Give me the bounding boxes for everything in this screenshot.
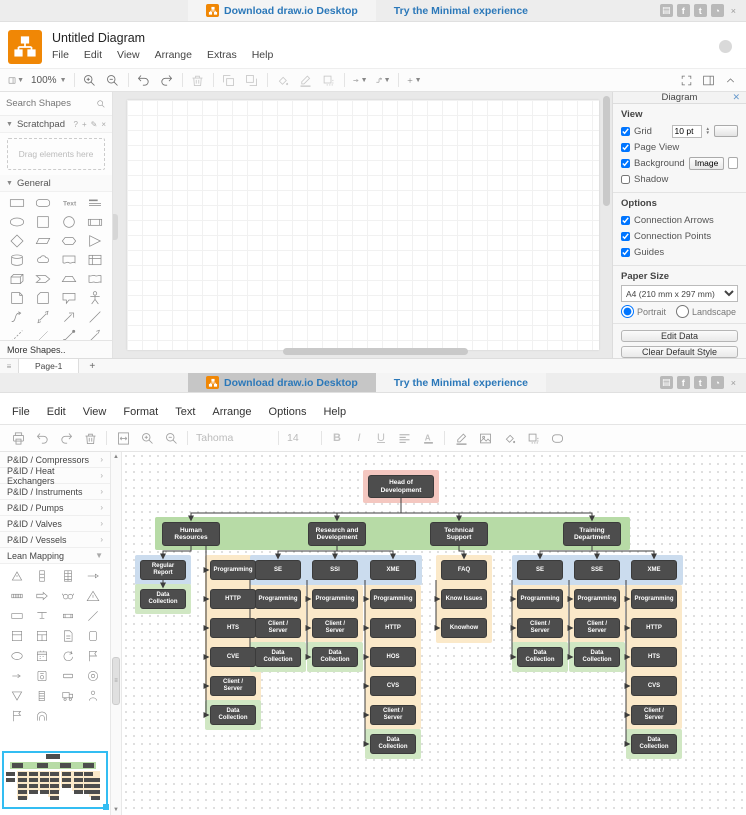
app1-toolbar: ▼100%▼▼▼▼ [0, 68, 746, 92]
lean-shape-flag-note-icon[interactable] [81, 647, 107, 664]
shape-dashed-line-icon[interactable] [4, 327, 30, 340]
insert-button[interactable]: ▼ [406, 72, 422, 88]
social-links: ▤ f t ◔ × [660, 4, 736, 17]
minimal-experience-label: Try the Minimal experience [394, 377, 528, 389]
scroll-up-icon[interactable]: ▲ [111, 454, 121, 460]
outline-thumbnail [4, 753, 104, 807]
shape-callout-icon[interactable] [56, 289, 82, 307]
shape-cylinder-icon[interactable] [4, 251, 30, 269]
more-shapes-button[interactable]: More Shapes.. [0, 340, 112, 358]
lean-shape-arch-icon[interactable] [30, 707, 56, 724]
shape-hexagon-icon[interactable] [56, 232, 82, 250]
shape-internal-storage-icon[interactable] [82, 251, 108, 269]
help-icon[interactable]: ? [74, 120, 78, 129]
shape-line-icon[interactable] [82, 308, 108, 326]
app2-canvas[interactable]: Head of DevelopmentHuman ResourcesResear… [122, 452, 746, 815]
shape-trapezoid-icon[interactable] [56, 270, 82, 288]
lean-shape-warning-triangle-icon[interactable] [81, 587, 107, 604]
diagram-node-cs6[interactable]: Client / Server [574, 618, 620, 638]
page-title: Untitled Diagram [52, 31, 145, 45]
minimal-experience-button[interactable]: Try the Minimal experience [376, 373, 546, 392]
waypoints-button[interactable]: ▼ [352, 72, 368, 88]
zoom-in-button[interactable] [82, 72, 98, 88]
lean-shape-box-label-icon[interactable] [4, 607, 30, 624]
connection-points-checkbox[interactable] [621, 232, 630, 241]
diagram-node-ts[interactable]: Technical Support [430, 522, 488, 546]
diagram-node-rnd[interactable]: Research and Development [308, 522, 366, 546]
sidebar-resize-handle[interactable] [113, 214, 118, 240]
portrait-radio[interactable] [621, 305, 634, 318]
search-input[interactable] [6, 98, 92, 109]
image-button[interactable] [477, 430, 493, 446]
facebook-icon[interactable]: f [677, 4, 690, 17]
menu-arrange[interactable]: Arrange [155, 49, 192, 61]
minimal-experience-label: Try the Minimal experience [394, 5, 528, 17]
app2-sidebar: P&ID / Compressors›P&ID / Heat Exchanger… [0, 452, 110, 815]
diagram-node-dc5[interactable]: Data Collection [517, 647, 563, 667]
background-color-swatch[interactable] [728, 157, 738, 169]
undo-button[interactable] [34, 430, 50, 446]
lean-shape-cylinder-drum-icon[interactable] [81, 627, 107, 644]
close-icon[interactable]: ✕ [732, 92, 740, 103]
to-back-button[interactable] [244, 72, 260, 88]
font-color-button[interactable]: A [420, 430, 436, 446]
shape-card-icon[interactable] [30, 289, 56, 307]
diagram-node-cs2[interactable]: Client / Server [255, 618, 301, 638]
app2-toolbar: Tahoma14BIUA [0, 424, 746, 452]
shadow-label: Shadow [634, 174, 668, 185]
lean-shape-circle-box-icon[interactable] [30, 667, 56, 684]
lean-shape-window-icon[interactable] [4, 627, 30, 644]
to-front-button[interactable] [221, 72, 237, 88]
sidebar-section-p-id-vessels[interactable]: P&ID / Vessels› [0, 532, 110, 548]
search-icon [96, 99, 106, 109]
format-panel: Diagram ✕ View Grid ▲▼ Page View Backgro… [612, 92, 746, 358]
sidebar-scrollbar[interactable]: ▲ ≡ ▼ [110, 452, 122, 815]
svg-text:Text: Text [63, 201, 77, 208]
chevron-down-icon: ▼ [6, 180, 13, 187]
grid-checkbox[interactable] [621, 127, 630, 136]
chevron-right-icon: › [100, 503, 103, 512]
fill-color-button[interactable] [275, 72, 291, 88]
shape-cube-icon[interactable] [4, 270, 30, 288]
facebook-icon[interactable]: f [677, 376, 690, 389]
options-section-title: Options [621, 198, 738, 209]
landscape-radio-label[interactable]: Landscape [676, 305, 736, 318]
diagram-node-h3[interactable]: HTTP [631, 618, 677, 638]
shape-process-icon[interactable] [82, 213, 108, 231]
page-tabbar: ≡ Page-1 + [0, 358, 746, 373]
general-section-header[interactable]: ▼ General [0, 175, 112, 192]
diagram-node-cs1[interactable]: Client / Server [210, 676, 256, 696]
diagram-node-p5[interactable]: Programming [517, 589, 563, 609]
github-icon[interactable]: ◔ [711, 4, 724, 17]
outline-preview[interactable] [2, 751, 108, 809]
highlight-panel-band [155, 517, 630, 550]
scratchpad-header[interactable]: ▼ Scratchpad ? + ✎ × [0, 116, 112, 133]
shape-circle-icon[interactable] [56, 213, 82, 231]
bold-button[interactable]: B [330, 432, 344, 444]
sidebar-section-p-id-pumps[interactable]: P&ID / Pumps› [0, 500, 110, 516]
download-desktop-button[interactable]: Download draw.io Desktop [188, 0, 376, 21]
shadow-button[interactable] [321, 72, 337, 88]
diagram-node-c1[interactable]: CVE [210, 647, 256, 667]
printer-button[interactable] [10, 430, 26, 446]
fill-color-button[interactable] [501, 430, 517, 446]
download-desktop-label: Download draw.io Desktop [224, 377, 358, 389]
delete-button[interactable] [190, 72, 206, 88]
lean-shape-tee-icon[interactable] [30, 607, 56, 624]
shape-note-icon[interactable] [4, 289, 30, 307]
connection-button[interactable]: ▼ [375, 72, 391, 88]
italic-button[interactable]: I [352, 432, 366, 444]
diagram-node-head[interactable]: Head of Development [368, 475, 434, 498]
zoom-out-button[interactable] [163, 430, 179, 446]
shape-step-icon[interactable] [30, 270, 56, 288]
blog-icon[interactable]: ▤ [660, 4, 673, 17]
account-button[interactable] [719, 40, 732, 53]
undo-button[interactable] [136, 72, 152, 88]
scroll-down-icon[interactable]: ▼ [111, 807, 121, 813]
diagram-node-dcrr[interactable]: Data Collection [140, 589, 186, 609]
shadow-button[interactable] [525, 430, 541, 446]
diagram-node-dc2[interactable]: Data Collection [255, 647, 301, 667]
menu-options[interactable]: Options [269, 406, 307, 418]
minimal-experience-button[interactable]: Try the Minimal experience [376, 0, 546, 21]
view-section-title: View [621, 109, 738, 120]
blog-icon[interactable]: ▤ [660, 376, 673, 389]
bottom-banner: Download draw.io Desktop Try the Minimal… [0, 373, 746, 393]
app2-menubar: FileEditViewFormatTextArrangeOptionsHelp [0, 393, 746, 424]
top-banner: Download draw.io Desktop Try the Minimal… [0, 0, 746, 22]
grid-label: Grid [634, 126, 652, 137]
lean-shape-target-icon[interactable] [81, 667, 107, 684]
diagram-node-p1[interactable]: Programming [210, 560, 256, 580]
tab-diagram[interactable]: Diagram [662, 92, 698, 103]
option-label: Connection Points [634, 231, 711, 242]
shape-square-icon[interactable] [30, 213, 56, 231]
expand-button[interactable] [678, 72, 694, 88]
diagram-node-h1[interactable]: HTTP [210, 589, 256, 609]
drawio-logo-icon [206, 376, 219, 389]
line-color-button[interactable] [298, 72, 314, 88]
guides-checkbox[interactable] [621, 248, 630, 257]
app1-canvas[interactable] [113, 92, 612, 358]
diagram-node-p6[interactable]: Programming [574, 589, 620, 609]
zoom-dropdown[interactable]: 100%▼ [31, 75, 67, 86]
collapse-expand-button[interactable] [722, 72, 738, 88]
diagram-node-p2[interactable]: Programming [255, 589, 301, 609]
diagram-node-xme1[interactable]: XME [370, 560, 416, 580]
twitter-icon[interactable]: t [694, 4, 707, 17]
background-image-button[interactable]: Image [689, 157, 725, 170]
rounded-style-button[interactable] [549, 430, 565, 446]
diagram-node-se1[interactable]: SE [255, 560, 301, 580]
menu-arrange[interactable]: Arrange [212, 406, 251, 418]
diagram-node-t2[interactable]: HTS [631, 647, 677, 667]
font-family-field[interactable]: Tahoma [196, 432, 270, 444]
background-label: Background [634, 158, 685, 169]
diagram-node-cs4[interactable]: Client / Server [370, 705, 416, 725]
sidebar-section-p-id-instruments[interactable]: P&ID / Instruments› [0, 484, 110, 500]
menu-format[interactable]: Format [123, 406, 158, 418]
diagram-node-hos[interactable]: HOS [370, 647, 416, 667]
menu-help[interactable]: Help [252, 49, 274, 61]
drawio-logo-icon [206, 4, 219, 17]
lean-shape-list-lines-icon[interactable] [30, 687, 56, 704]
scratchpad-title: Scratchpad [17, 119, 65, 130]
app1-header: Untitled Diagram FileEditViewArrangeExtr… [0, 28, 746, 68]
add-icon[interactable]: + [82, 120, 87, 129]
lean-shape-calendar-icon[interactable] [30, 647, 56, 664]
shape-rectangle-icon[interactable] [4, 194, 30, 212]
close-icon[interactable]: × [101, 120, 106, 129]
svg-text:A: A [424, 433, 430, 442]
close-icon[interactable]: × [731, 378, 736, 388]
lean-shape-ellipse-open-icon[interactable] [4, 647, 30, 664]
horizontal-scrollbar[interactable] [283, 348, 468, 355]
zoom-in-button[interactable] [139, 430, 155, 446]
shape-ellipse-icon[interactable] [4, 213, 30, 231]
diagram-node-dc7[interactable]: Data Collection [631, 734, 677, 754]
shape-text-icon[interactable]: Text [56, 194, 82, 212]
zoom-out-button[interactable] [105, 72, 121, 88]
menu-text[interactable]: Text [175, 406, 195, 418]
edit-data-button[interactable]: Edit Data [621, 330, 738, 342]
portrait-radio-label[interactable]: Portrait [621, 305, 666, 318]
lean-shape-flag-icon[interactable] [4, 707, 30, 724]
diagram-node-cs7[interactable]: Client / Server [631, 705, 677, 725]
diagram-node-p4[interactable]: Programming [370, 589, 416, 609]
lean-shape-line-icon[interactable] [81, 607, 107, 624]
vertical-scrollbar[interactable] [603, 96, 610, 206]
scrollbar-thumb[interactable]: ≡ [112, 657, 120, 705]
chevron-right-icon: › [100, 535, 103, 544]
lean-shape-window-grid-icon[interactable] [30, 627, 56, 644]
shape-palette: Text [0, 192, 112, 340]
general-title: General [17, 178, 51, 189]
sidebar-section-lean-mapping[interactable]: Lean Mapping▼ [0, 548, 110, 564]
redo-button[interactable] [58, 430, 74, 446]
chevron-down-icon: ▼ [6, 121, 13, 128]
chevron-right-icon: › [100, 519, 103, 528]
download-desktop-label: Download draw.io Desktop [224, 5, 358, 17]
fit-page-button[interactable] [115, 430, 131, 446]
lean-shape-small-arrow-icon[interactable] [4, 667, 30, 684]
lean-shape-inverted-triangle-icon[interactable] [4, 687, 30, 704]
shape-document-icon[interactable] [56, 251, 82, 269]
pages-menu-icon[interactable]: ≡ [0, 362, 18, 371]
view-panel-button[interactable]: ▼ [8, 72, 24, 88]
menu-edit[interactable]: Edit [47, 406, 66, 418]
diagram-node-td[interactable]: Training Department [563, 522, 621, 546]
paper-size-select[interactable]: A4 (210 mm x 297 mm) [621, 285, 738, 302]
menu-file[interactable]: File [12, 406, 30, 418]
line-color-button[interactable] [453, 430, 469, 446]
shape-rounded-rectangle-icon[interactable] [30, 194, 56, 212]
shape-dotted-line-icon[interactable] [56, 327, 82, 340]
page-view-checkbox[interactable] [621, 143, 630, 152]
lean-shape-palette [0, 564, 110, 727]
sidebar-section-p-id-valves[interactable]: P&ID / Valves› [0, 516, 110, 532]
delete-button[interactable] [82, 430, 98, 446]
menu-extras[interactable]: Extras [207, 49, 237, 61]
download-desktop-button[interactable]: Download draw.io Desktop [188, 373, 376, 392]
view-panel-button[interactable] [700, 72, 716, 88]
shape-actor-icon[interactable] [82, 289, 108, 307]
diagram-node-h2[interactable]: HTTP [370, 618, 416, 638]
add-page-button[interactable]: + [79, 361, 105, 372]
lean-shape-plate-icon[interactable] [55, 667, 81, 684]
dropzone-hint: Drag elements here [19, 149, 94, 159]
edit-icon[interactable]: ✎ [91, 120, 98, 129]
shape-cloud-icon[interactable] [30, 251, 56, 269]
grid-color-swatch[interactable] [714, 125, 738, 137]
diagram-node-xme2[interactable]: XME [631, 560, 677, 580]
app1-menubar: FileEditViewArrangeExtrasHelp [52, 49, 273, 61]
shape-diamond-icon[interactable] [4, 232, 30, 250]
diagram-node-cvs2[interactable]: CVS [631, 676, 677, 696]
diagram-node-faq[interactable]: FAQ [441, 560, 487, 580]
shadow-checkbox[interactable] [621, 175, 630, 184]
lean-shape-burst-triangle-icon[interactable] [4, 567, 30, 584]
shape-thin-line-icon[interactable] [30, 327, 56, 340]
option-label: Guides [634, 247, 664, 258]
diagram-node-p7[interactable]: Programming [631, 589, 677, 609]
shape-arrow-icon[interactable] [56, 308, 82, 326]
diagram-node-p3[interactable]: Programming [312, 589, 358, 609]
close-icon[interactable]: × [731, 6, 736, 16]
shape-bidirectional-arrow-icon[interactable] [30, 308, 56, 326]
menu-file[interactable]: File [52, 49, 69, 61]
outline-resize-handle[interactable] [103, 804, 109, 810]
shape-parallelogram-icon[interactable] [30, 232, 56, 250]
tab-page-1[interactable]: Page-1 [18, 359, 79, 373]
diagram-node-dc6[interactable]: Data Collection [574, 647, 620, 667]
stepper-icon[interactable]: ▲▼ [706, 127, 710, 136]
grid-size-input[interactable] [672, 125, 702, 138]
diagram-node-rr[interactable]: Regular Report [140, 560, 186, 580]
diagram-node-hr[interactable]: Human Resources [162, 522, 220, 546]
shape-triangle-icon[interactable] [82, 232, 108, 250]
chevron-right-icon: › [100, 487, 103, 496]
align-left-button[interactable] [396, 430, 412, 446]
background-checkbox[interactable] [621, 159, 630, 168]
lean-shape-push-line-icon[interactable] [81, 567, 107, 584]
chevron-down-icon: ▼ [95, 551, 103, 560]
twitter-icon[interactable]: t [694, 376, 707, 389]
diagram-node-kh[interactable]: Knowhow [441, 618, 487, 638]
lean-shape-operator-icon[interactable] [81, 687, 107, 704]
lean-shape-stripes-icon[interactable] [4, 587, 30, 604]
paper-size-title: Paper Size [621, 271, 738, 282]
lean-shape-grid-box-icon[interactable] [55, 567, 81, 584]
font-size-field[interactable]: 14 [287, 432, 313, 444]
menu-view[interactable]: View [117, 49, 140, 61]
redo-button[interactable] [159, 72, 175, 88]
drawio-logo [8, 30, 42, 64]
option-label: Connection Arrows [634, 215, 714, 226]
lean-shape-stacked-box-icon[interactable] [30, 567, 56, 584]
lean-shape-truck-icon[interactable] [55, 687, 81, 704]
shape-tape-icon[interactable] [82, 270, 108, 288]
menu-view[interactable]: View [83, 406, 107, 418]
chevron-right-icon: › [100, 455, 103, 464]
diagram-node-cvs1[interactable]: CVS [370, 676, 416, 696]
menu-edit[interactable]: Edit [84, 49, 102, 61]
scratchpad-dropzone[interactable]: Drag elements here [7, 138, 105, 170]
shapes-sidebar: ▼ Scratchpad ? + ✎ × Drag elements here … [0, 92, 113, 358]
lean-shape-glasses-icon[interactable] [55, 587, 81, 604]
shape-directional-line-icon[interactable] [82, 327, 108, 340]
page-view-label: Page View [634, 142, 679, 153]
diagram-node-t1[interactable]: HTS [210, 618, 256, 638]
connection-arrows-checkbox[interactable] [621, 216, 630, 225]
lean-shape-arrow-right-icon[interactable] [30, 587, 56, 604]
diagram-node-se2[interactable]: SE [517, 560, 563, 580]
canvas-page[interactable] [127, 100, 599, 350]
lean-shape-circular-arrow-icon[interactable] [55, 647, 81, 664]
diagram-node-dc1[interactable]: Data Collection [210, 705, 256, 725]
menu-help[interactable]: Help [323, 406, 346, 418]
clear-default-style-button[interactable]: Clear Default Style [621, 346, 738, 358]
diagram-node-ki[interactable]: Know Issues [441, 589, 487, 609]
github-icon[interactable]: ◔ [711, 376, 724, 389]
diagram-node-dc3[interactable]: Data Collection [312, 647, 358, 667]
social-links: ▤ f t ◔ × [660, 376, 736, 389]
landscape-radio[interactable] [676, 305, 689, 318]
underline-button[interactable]: U [374, 432, 388, 444]
shape-curve-icon[interactable] [4, 308, 30, 326]
chevron-right-icon: › [100, 471, 103, 480]
sidebar-section-p-id-heat-exchangers[interactable]: P&ID / Heat Exchangers› [0, 468, 110, 484]
diagram-node-cs3[interactable]: Client / Server [312, 618, 358, 638]
diagram-node-cs5[interactable]: Client / Server [517, 618, 563, 638]
diagram-node-sse[interactable]: SSE [574, 560, 620, 580]
diagram-node-dc4[interactable]: Data Collection [370, 734, 416, 754]
lean-shape-data-box-icon[interactable] [55, 607, 81, 624]
lean-shape-document-card-icon[interactable] [55, 627, 81, 644]
diagram-node-ssi[interactable]: SSI [312, 560, 358, 580]
shape-heading-icon[interactable] [82, 194, 108, 212]
